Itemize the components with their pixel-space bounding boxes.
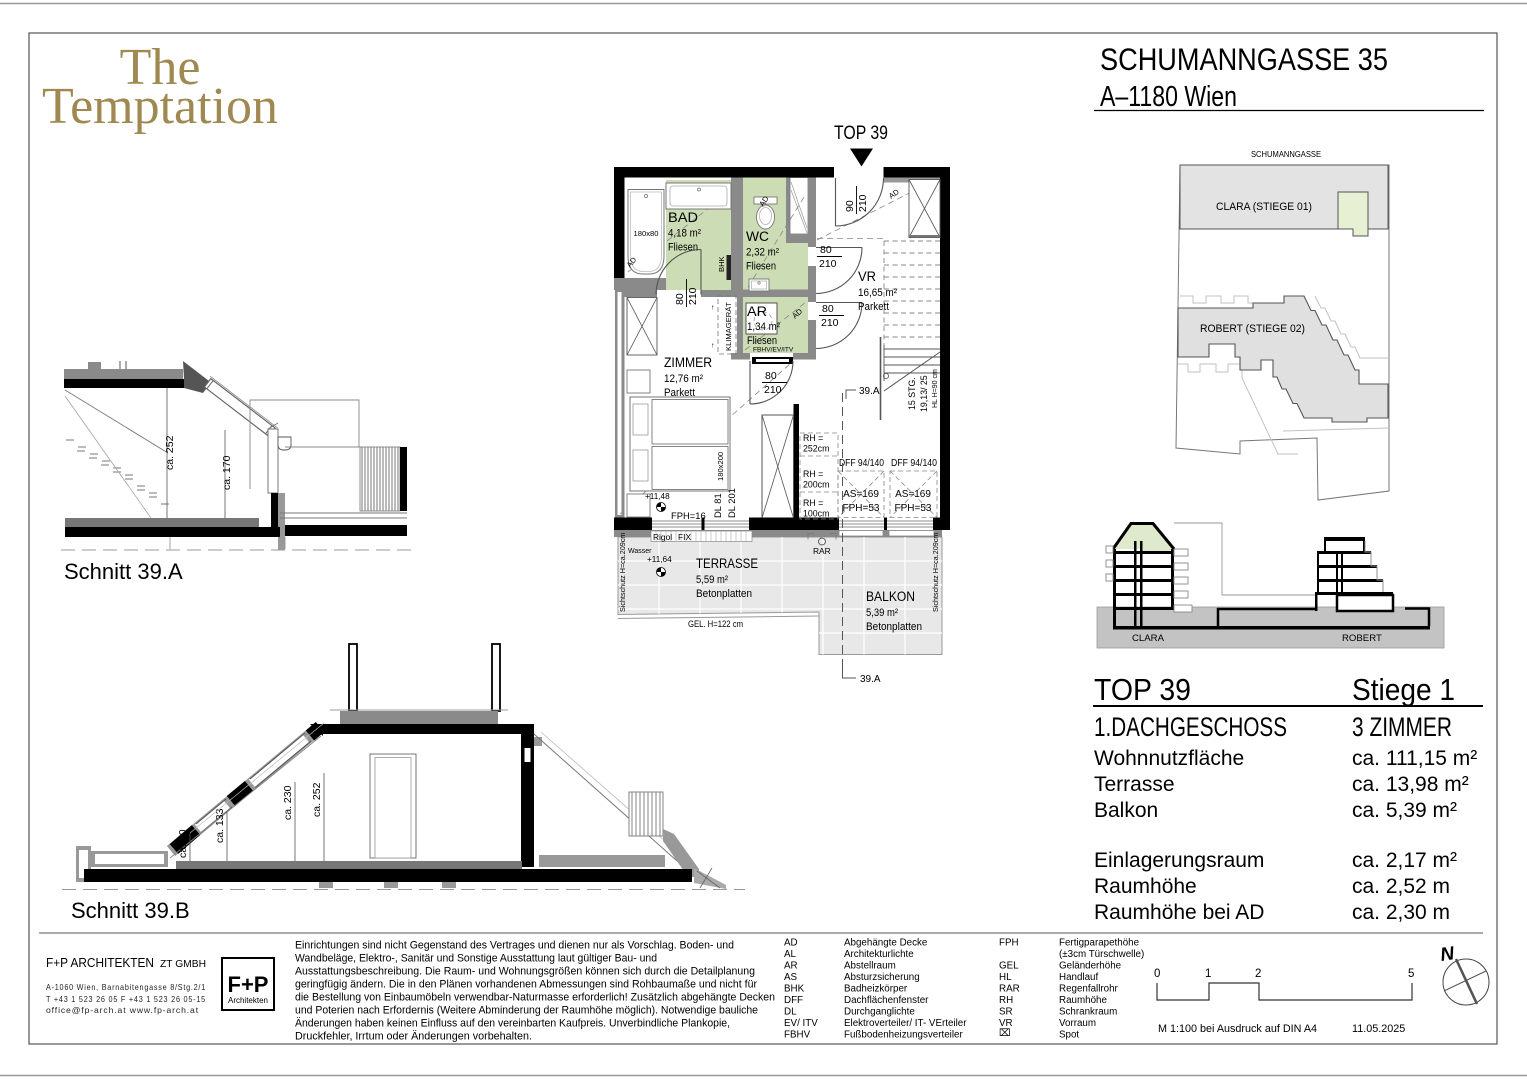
svg-text:Stiege 1: Stiege 1 (1352, 673, 1455, 707)
svg-text:Architekturlichte: Architekturlichte (844, 949, 914, 960)
svg-text:TOP 39: TOP 39 (834, 123, 888, 144)
svg-text:TOP 39: TOP 39 (1094, 673, 1191, 707)
svg-text:19,13/ 25: 19,13/ 25 (919, 375, 929, 412)
svg-text:FPH=16: FPH=16 (671, 510, 706, 521)
svg-text:ZT GMBH: ZT GMBH (160, 959, 206, 970)
svg-text:80: 80 (822, 303, 834, 315)
svg-text:Balkon: Balkon (1094, 799, 1158, 822)
svg-text:ca. 252: ca. 252 (164, 435, 176, 470)
svg-text:210: 210 (687, 287, 699, 305)
svg-text:Dachflächenfenster: Dachflächenfenster (844, 995, 929, 1006)
svg-text:Elektroverteiler/ IT- VErteile: Elektroverteiler/ IT- VErteiler (844, 1018, 967, 1029)
svg-text:+11,48: +11,48 (645, 492, 670, 501)
svg-text:Terrasse: Terrasse (1094, 773, 1175, 796)
svg-text:ca. 133: ca. 133 (214, 808, 226, 843)
svg-text:die Bestellung von Einbaumöbel: die Bestellung von Einbaumöbeln verwendb… (295, 992, 775, 1004)
svg-text:→: → (709, 304, 716, 311)
svg-text:Geländerhöhe: Geländerhöhe (1059, 961, 1122, 972)
svg-text:100cm: 100cm (803, 509, 829, 519)
svg-text:Schnitt 39.A: Schnitt 39.A (64, 559, 183, 584)
svg-text:AL: AL (784, 949, 797, 960)
svg-text:A–1180 Wien: A–1180 Wien (1100, 81, 1237, 113)
svg-text:1.DACHGESCHOSS: 1.DACHGESCHOSS (1094, 712, 1287, 742)
svg-text:Rigol: Rigol (653, 532, 672, 542)
svg-text:DL 81: DL 81 (712, 493, 723, 518)
svg-text:39.A: 39.A (859, 386, 880, 397)
svg-text:AS=169: AS=169 (843, 489, 879, 500)
svg-text:Sichtschutz H=ca.209cm: Sichtschutz H=ca.209cm (931, 533, 940, 612)
svg-text:GEL: GEL (999, 961, 1019, 972)
svg-text:11.05.2025: 11.05.2025 (1352, 1023, 1405, 1035)
svg-text:CLARA: CLARA (1132, 633, 1165, 644)
svg-text:M 1:100 bei Ausdruck auf DIN A: M 1:100 bei Ausdruck auf DIN A4 (1158, 1023, 1317, 1035)
svg-text:Raumhöhe: Raumhöhe (1094, 875, 1197, 898)
svg-text:RH =: RH = (803, 469, 823, 479)
svg-text:CLARA (STIEGE 01): CLARA (STIEGE 01) (1216, 201, 1312, 213)
svg-text:5,39 m²: 5,39 m² (866, 607, 898, 619)
svg-text:Abstellraum: Abstellraum (844, 961, 896, 972)
svg-text:Einrichtungen sind nicht Gegen: Einrichtungen sind nicht Gegenstand des … (295, 940, 734, 952)
svg-text:Fertigparapethöhe: Fertigparapethöhe (1059, 938, 1140, 949)
svg-text:BAD: BAD (668, 210, 698, 225)
svg-text:ca. 2,17 m²: ca. 2,17 m² (1352, 849, 1457, 872)
svg-text:AS=169: AS=169 (895, 489, 931, 500)
svg-text:180x200: 180x200 (716, 452, 725, 481)
svg-text:ca. 2,52 m: ca. 2,52 m (1352, 875, 1450, 898)
svg-text:DFF 94/140: DFF 94/140 (839, 457, 884, 469)
svg-text:FPH=53: FPH=53 (895, 503, 932, 514)
svg-text:T +43 1 523 26 05 F +43 1 52: T +43 1 523 26 05 F +43 1 523 26 05-15 (46, 994, 206, 1004)
svg-text:Badheizkörper: Badheizkörper (844, 984, 908, 995)
svg-text:Handlauf: Handlauf (1059, 972, 1098, 983)
svg-text:ca. 5,39 m²: ca. 5,39 m² (1352, 799, 1457, 822)
svg-text:Parkett: Parkett (664, 387, 695, 399)
svg-text:Abgehängte Decke: Abgehängte Decke (844, 938, 928, 949)
svg-text:ca. 50: ca. 50 (177, 829, 189, 858)
svg-text:1: 1 (1205, 968, 1211, 980)
svg-text:210: 210 (764, 384, 782, 396)
svg-text:ZIMMER: ZIMMER (664, 355, 712, 370)
svg-text:5: 5 (1408, 968, 1414, 980)
svg-text:Fliesen: Fliesen (668, 242, 698, 254)
svg-text:WC: WC (746, 229, 769, 244)
svg-text:Wandbeläge, Elektro-, Sanitär: Wandbeläge, Elektro-, Sanitär und Sonsti… (295, 953, 657, 965)
svg-text:Ausstattungsbeschreibung. Die: Ausstattungsbeschreibung. Die Raum- und … (295, 966, 755, 978)
svg-text:210: 210 (857, 194, 869, 212)
svg-text:39.A: 39.A (860, 674, 881, 685)
svg-text:RAR: RAR (999, 984, 1020, 995)
svg-text:SR: SR (999, 1007, 1013, 1018)
svg-text:VR: VR (858, 269, 876, 284)
svg-text:3 ZIMMER: 3 ZIMMER (1352, 712, 1452, 742)
svg-text:Vorraum: Vorraum (1059, 1018, 1096, 1029)
svg-text:AR: AR (784, 961, 798, 972)
svg-text:Schrankraum: Schrankraum (1059, 1007, 1117, 1018)
svg-text:ca. 170: ca. 170 (221, 455, 233, 490)
svg-text:⌧: ⌧ (999, 1028, 1010, 1039)
svg-text:und Poterien nach Erfordernis: und Poterien nach Erfordernis (Weitere A… (295, 1005, 758, 1017)
svg-text:DFF: DFF (784, 995, 803, 1006)
svg-text:AD: AD (784, 938, 798, 949)
svg-text:80: 80 (820, 244, 832, 256)
svg-text:Änderungen haben keinen Einflu: Änderungen haben keinen Einfluss auf den… (295, 1018, 730, 1030)
svg-text:200cm: 200cm (803, 480, 829, 490)
svg-text:5,59 m²: 5,59 m² (696, 574, 728, 586)
svg-text:Betonplatten: Betonplatten (696, 588, 752, 600)
svg-text:→: → (709, 342, 716, 349)
svg-text:SCHUMANNGASSE 35: SCHUMANNGASSE 35 (1100, 41, 1388, 77)
svg-text:BHK: BHK (784, 984, 805, 995)
svg-text:ca. 13,98 m²: ca. 13,98 m² (1352, 773, 1469, 796)
svg-text:210: 210 (821, 317, 839, 329)
svg-text:Parkett: Parkett (858, 301, 889, 313)
svg-text:ROBERT: ROBERT (1342, 633, 1382, 644)
svg-text:+11,64: +11,64 (647, 555, 672, 564)
svg-text:RAR: RAR (813, 546, 831, 556)
svg-text:DL: DL (784, 1007, 797, 1018)
svg-text:1,34 m²: 1,34 m² (747, 321, 780, 333)
svg-text:A-1060 Wien, Barnabitengasse 8: A-1060 Wien, Barnabitengasse 8/Stg.2/1 (46, 982, 206, 992)
svg-text:N: N (1439, 943, 1457, 966)
svg-text:RH =: RH = (803, 433, 823, 443)
svg-text:Raumhöhe: Raumhöhe (1059, 995, 1107, 1006)
svg-text:FPH: FPH (999, 938, 1019, 949)
svg-text:Spot: Spot (1059, 1030, 1079, 1041)
svg-text:210: 210 (819, 258, 837, 270)
svg-text:DFF 94/140: DFF 94/140 (891, 457, 937, 469)
svg-text:Einlagerungsraum: Einlagerungsraum (1094, 849, 1264, 872)
svg-text:DL 201: DL 201 (726, 488, 737, 518)
svg-text:KLIMAGERÄT: KLIMAGERÄT (724, 302, 733, 351)
svg-text:180x80: 180x80 (634, 229, 659, 238)
svg-text:Wohnnutzfläche: Wohnnutzfläche (1094, 747, 1244, 770)
svg-text:EV/ ITV: EV/ ITV (784, 1018, 818, 1029)
svg-text:ROBERT (STIEGE 02): ROBERT (STIEGE 02) (1200, 323, 1305, 335)
svg-text:GEL. H=122 cm: GEL. H=122 cm (688, 618, 743, 629)
svg-text:Fliesen: Fliesen (746, 261, 776, 273)
svg-text:AR: AR (747, 304, 767, 319)
svg-text:4,18 m²: 4,18 m² (668, 228, 701, 240)
svg-text:F+P: F+P (228, 972, 269, 997)
svg-text:SCHUMANNGASSE: SCHUMANNGASSE (1251, 149, 1321, 159)
svg-text:Wasser: Wasser (628, 548, 652, 555)
svg-text:Temptation: Temptation (42, 78, 278, 135)
svg-text:Betonplatten: Betonplatten (866, 621, 922, 633)
svg-text:HL H=90 cm: HL H=90 cm (932, 369, 939, 408)
svg-text:2,32 m²: 2,32 m² (746, 247, 779, 259)
svg-text:ca. 2,30 m: ca. 2,30 m (1352, 901, 1450, 924)
svg-text:2: 2 (1255, 968, 1261, 980)
svg-text:Regenfallrohr: Regenfallrohr (1059, 984, 1119, 995)
svg-text:AS: AS (784, 972, 798, 983)
svg-text:RH: RH (999, 995, 1013, 1006)
svg-text:FBHV/EV/ITV: FBHV/EV/ITV (753, 347, 794, 354)
svg-text:16,65 m²: 16,65 m² (858, 287, 897, 299)
svg-text:ca. 252: ca. 252 (311, 782, 323, 817)
svg-text:BALKON: BALKON (866, 589, 915, 604)
svg-text:BHK: BHK (717, 256, 726, 272)
svg-text:HL: HL (999, 972, 1012, 983)
svg-text:ca. 111,15 m²: ca. 111,15 m² (1352, 747, 1477, 770)
svg-text:Durchganglichte: Durchganglichte (844, 1007, 915, 1018)
svg-text:252cm: 252cm (803, 444, 829, 454)
svg-text:15 STG.: 15 STG. (907, 377, 917, 410)
svg-text:80: 80 (765, 370, 777, 382)
svg-text:Fliesen: Fliesen (747, 335, 777, 347)
svg-text:Fußbodenheizungsverteiler: Fußbodenheizungsverteiler (844, 1030, 963, 1041)
svg-text:F+P ARCHITEKTEN: F+P ARCHITEKTEN (46, 956, 154, 970)
svg-text:12,76 m²: 12,76 m² (664, 373, 703, 385)
svg-text:office@fp-arch.at www.fp-a: office@fp-arch.at www.fp-arch.at (46, 1005, 199, 1015)
svg-text:80: 80 (674, 293, 686, 305)
svg-text:Absturzsicherung: Absturzsicherung (844, 972, 920, 983)
svg-text:geringfügig ändern. Die in den: geringfügig ändern. Die in den Plänen vo… (295, 979, 757, 991)
svg-text:Schnitt 39.B: Schnitt 39.B (71, 898, 190, 923)
svg-text:90: 90 (844, 200, 856, 212)
svg-text:FBHV: FBHV (784, 1030, 811, 1041)
svg-text:RH =: RH = (803, 498, 823, 508)
svg-text:Sichtschutz H=ca.209cm: Sichtschutz H=ca.209cm (618, 533, 627, 612)
svg-text:Raumhöhe bei AD: Raumhöhe bei AD (1094, 901, 1264, 924)
svg-text:TERRASSE: TERRASSE (696, 556, 758, 571)
svg-text:Druckfehler, Irrtum oder Änder: Druckfehler, Irrtum oder Änderungen vorb… (295, 1031, 532, 1043)
svg-text:0: 0 (1154, 968, 1160, 980)
svg-text:FIX: FIX (678, 532, 691, 542)
svg-text:(±3cm Türschwelle): (±3cm Türschwelle) (1059, 949, 1144, 960)
svg-text:ca. 230: ca. 230 (282, 785, 294, 820)
svg-text:Architekten: Architekten (228, 996, 268, 1005)
svg-text:FPH=53: FPH=53 (843, 503, 880, 514)
